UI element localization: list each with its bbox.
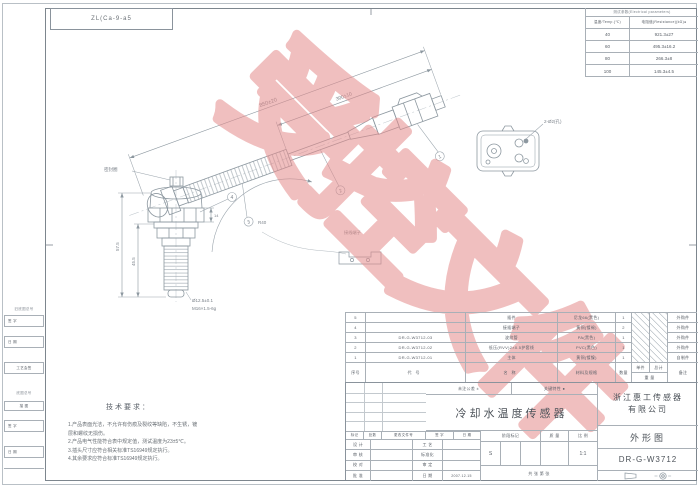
rev-header-mark: 标记 [346,431,364,440]
rev-header-doc: 更改文件号 [382,431,426,440]
stage-cell-1: S [481,442,501,466]
bom-qty: 1 [616,333,632,343]
rev-header-count: 处数 [364,431,382,440]
callout-diameter: Ø12.5±0.1 [192,298,213,303]
connector-face-view [477,124,543,176]
bom-qty: 1 [616,353,632,363]
bom-table: 5 插件 尼龙66(黑色) 1 外购件 4 接插端子 黄铜(镀锡) 2 外购件 … [345,312,697,382]
bom-code: DR-G-W3712-01 [366,353,466,363]
bom-material: 黄铜(镀镍) [558,353,616,363]
bom-remark: 外购件 [668,333,698,343]
sheet-count: 共 张 第 张 [481,466,598,481]
note-line: 3.插头尺寸应符合相关标准TS16949规定执行。 [68,447,338,456]
bom-header-material: 材料及规格 [558,363,616,383]
balloon-3: 3 [247,219,252,226]
rev-header-sign: 签 字 [426,431,454,440]
bom-remark: 外购件 [668,313,698,323]
tech-notes-title: 技术要求： [106,402,338,412]
margin-box-date1: 日 期 [4,336,44,348]
title-block: 标记 处数 更改文件号 签 字 日 期 设 计 工 艺 审 核 标准化 校 对 … [345,382,697,480]
sign-blank [443,440,481,450]
bom-material: PA(黑色) [558,333,616,343]
bom-remark: 外购件 [668,343,698,353]
key-characteristic-note: 关键特性 ● [512,383,598,395]
bom-qty: 1 [616,313,632,323]
bom-name: 插件 [466,313,558,323]
company-line1: 浙江惠工传感器 [613,392,683,404]
margin-box-sign2: 签 字 [4,420,44,432]
bom-no: 4 [346,323,366,333]
sign-approve: 批 准 [346,471,371,481]
sign-blank [443,450,481,460]
bom-name: 低压(RVV)2×0.5护套线 [466,343,558,353]
product-name: 冷却水温度传感器 [426,395,598,431]
sign-blank [443,461,481,471]
sign-check: 审 核 [346,450,371,460]
bom-material: PVC(黑色) [558,343,616,353]
callout-thread: M16×1.5-6g [192,306,217,311]
margin-label-old-master: 旧底图总号 [4,307,44,312]
bom-header-name: 名称 [466,363,558,383]
dim-height-thread: 45.5 [131,257,136,266]
note-line: 4.其余要求应符合标准TS16949规定执行。 [68,455,338,464]
bom-header-remark: 备注 [668,363,698,383]
bom-header-w1: 单件 [632,363,650,373]
scale-value: 1:1 [569,442,598,466]
first-angle-symbol [624,472,640,480]
stage-cell-2 [501,442,521,466]
doc-type: 外形图 [598,426,698,449]
note-line: 2.产品电气性能符合表中规定值，测试温度为23±5℃。 [68,438,338,447]
sign-blank [371,440,413,450]
bom-code: DR-G-W3712-02 [366,343,466,353]
note-line: 1.产品表面光洁，不允许有伤痕及裂纹等缺陷，不生锈，镀 [68,421,338,430]
bom-no: 1 [346,353,366,363]
sign-process: 工 艺 [413,440,443,450]
mass-value [541,442,569,466]
margin-box-sign1: 签 字 [4,315,44,327]
bom-header-code: 代号 [366,363,466,383]
bom-name: 接插端子 [466,323,558,333]
bom-name: 主体 [466,353,558,363]
mass-label: 质 量 [541,431,569,442]
margin-divider [4,468,44,469]
bom-no: 3 [346,333,366,343]
sign-blank [371,450,413,460]
note-line: 层和螺纹无损伤。 [68,430,338,439]
dim-height-overall: 57.5 [115,242,120,251]
tolerance-note: 未注公差 ± [426,383,512,395]
rev-header-date: 日 期 [454,431,481,440]
stage-cell-3 [521,442,541,466]
sign-date-label: 日 期 [413,471,443,481]
dim-hex-height: 14 [214,213,219,218]
bom-header-qty: 数量 [616,363,632,383]
company-line2: 有限公司 [628,404,668,416]
bom-material: 尼龙66(黑色) [558,313,616,323]
drawing-number: DR-G-W3712 [598,449,698,471]
bom-header-no: 序号 [346,363,366,383]
bom-no: 2 [346,343,366,353]
margin-box-trace: 描 图 [4,401,44,411]
bend-radius-label: R40 [258,220,267,225]
projection-symbols [598,471,698,481]
drawing-sheet: ZL(Ca-9-a5 测试参数(Electrical parameters) 温… [0,0,700,490]
tech-notes: 技术要求： 1.产品表面光洁，不允许有伤痕及裂纹等缺陷，不生锈，镀 层和螺纹无损… [68,402,338,464]
bom-name: 波纹管 [466,333,558,343]
scale-label: 比 例 [569,431,598,442]
bom-weight-hatch [650,313,668,363]
bom-material: 黄铜(镀锡) [558,323,616,333]
bom-code [366,313,466,323]
sign-standard: 标准化 [413,450,443,460]
sign-design: 设 计 [346,440,371,450]
projection-circle-symbol [654,472,672,480]
sign-date-value: 2007.12.15 [443,471,481,481]
bom-weight-hatch [632,313,650,363]
sign-blank [371,461,413,471]
stage-mark-label: 阶段标记 [481,431,541,442]
bom-code [366,323,466,333]
bom-code: DR-G-W3712-03 [366,333,466,343]
balloon-4: 4 [231,195,234,201]
margin-box-process: 工艺会签 [4,362,44,374]
sign-proof: 校 对 [346,461,371,471]
revision-grid [346,383,426,431]
bom-remark: 外购件 [668,323,698,333]
bom-qty: 1 [616,343,632,353]
margin-label-master: 底图总号 [4,391,44,396]
margin-box-date2: 日 期 [4,446,44,458]
bom-qty: 2 [616,323,632,333]
bom-remark: 自制件 [668,353,698,363]
company-name: 浙江惠工传感器 有限公司 [598,383,698,426]
seal-label: 密封圈 [104,166,118,173]
sign-verify: 审 定 [413,461,443,471]
sign-blank [371,471,413,481]
connector-callout: 2-Ø2(孔) [544,118,562,125]
bom-header-w2: 总计 [650,363,668,373]
bom-no: 5 [346,313,366,323]
